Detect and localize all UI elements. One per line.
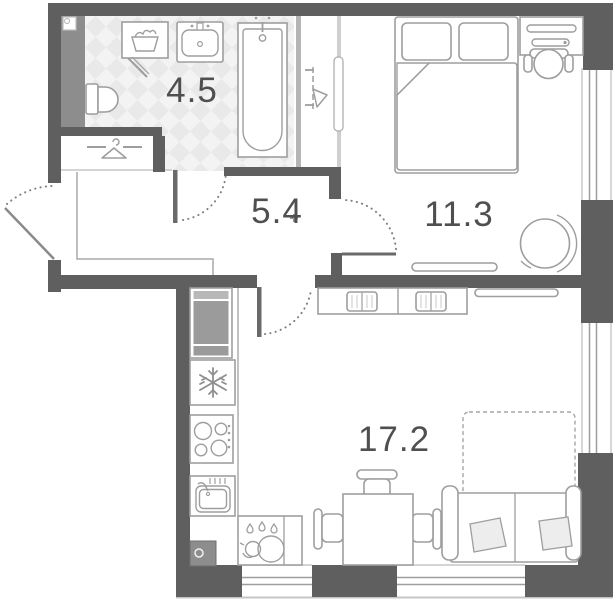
dining-chair	[412, 509, 441, 549]
sofa	[442, 412, 581, 562]
kitchen-counter	[190, 288, 302, 565]
window-living-bottom	[397, 565, 525, 585]
tall-cabinet	[190, 288, 232, 358]
dining-chair	[357, 470, 397, 497]
plumbing-shaft	[61, 16, 85, 127]
heating-riser-icon	[305, 67, 327, 109]
entrance-door	[5, 186, 54, 259]
washbasin-icon	[177, 22, 223, 62]
bedroom-door	[342, 200, 396, 254]
bedroom-area-label: 11.3	[424, 195, 494, 234]
dining-chair	[314, 509, 343, 549]
sofa-pillow	[470, 518, 506, 552]
desk-chair	[524, 49, 573, 79]
refrigerator	[190, 360, 235, 405]
wardrobe-doors-icon	[347, 292, 377, 311]
cooktop	[190, 415, 233, 463]
living-room-door	[257, 287, 311, 337]
bedroom-tv	[412, 263, 497, 271]
kitchen-sink	[190, 476, 235, 516]
wall-panel	[334, 57, 343, 131]
double-bed	[395, 17, 518, 173]
window-living-right	[582, 323, 611, 453]
floor-plan-canvas: 4.5 5.4 11.3 17.2	[0, 0, 615, 600]
wardrobe-row	[318, 288, 467, 314]
bathroom-door	[173, 170, 226, 223]
counter-kettle-section	[238, 516, 302, 565]
dining-table	[343, 494, 413, 565]
armchair	[521, 215, 577, 272]
living-tv	[475, 289, 558, 297]
ventilation-shaft	[190, 541, 216, 566]
bathroom-area-label: 4.5	[166, 71, 218, 110]
vent-grille-icon	[63, 17, 76, 30]
sofa-pillow	[539, 517, 572, 550]
window-kitchen-bottom	[242, 565, 312, 585]
sofa-bed-outline	[463, 412, 575, 497]
wardrobe-doors-icon	[416, 292, 446, 311]
clothes-hanger-icon	[87, 139, 142, 158]
window-bedroom-right	[582, 68, 611, 200]
living-kitchen-area-label: 17.2	[358, 420, 430, 459]
floor-plan: 4.5 5.4 11.3 17.2	[0, 0, 615, 600]
dining-set	[314, 470, 441, 565]
hallway-area-label: 5.4	[251, 192, 303, 231]
bathtub-icon	[238, 17, 287, 157]
